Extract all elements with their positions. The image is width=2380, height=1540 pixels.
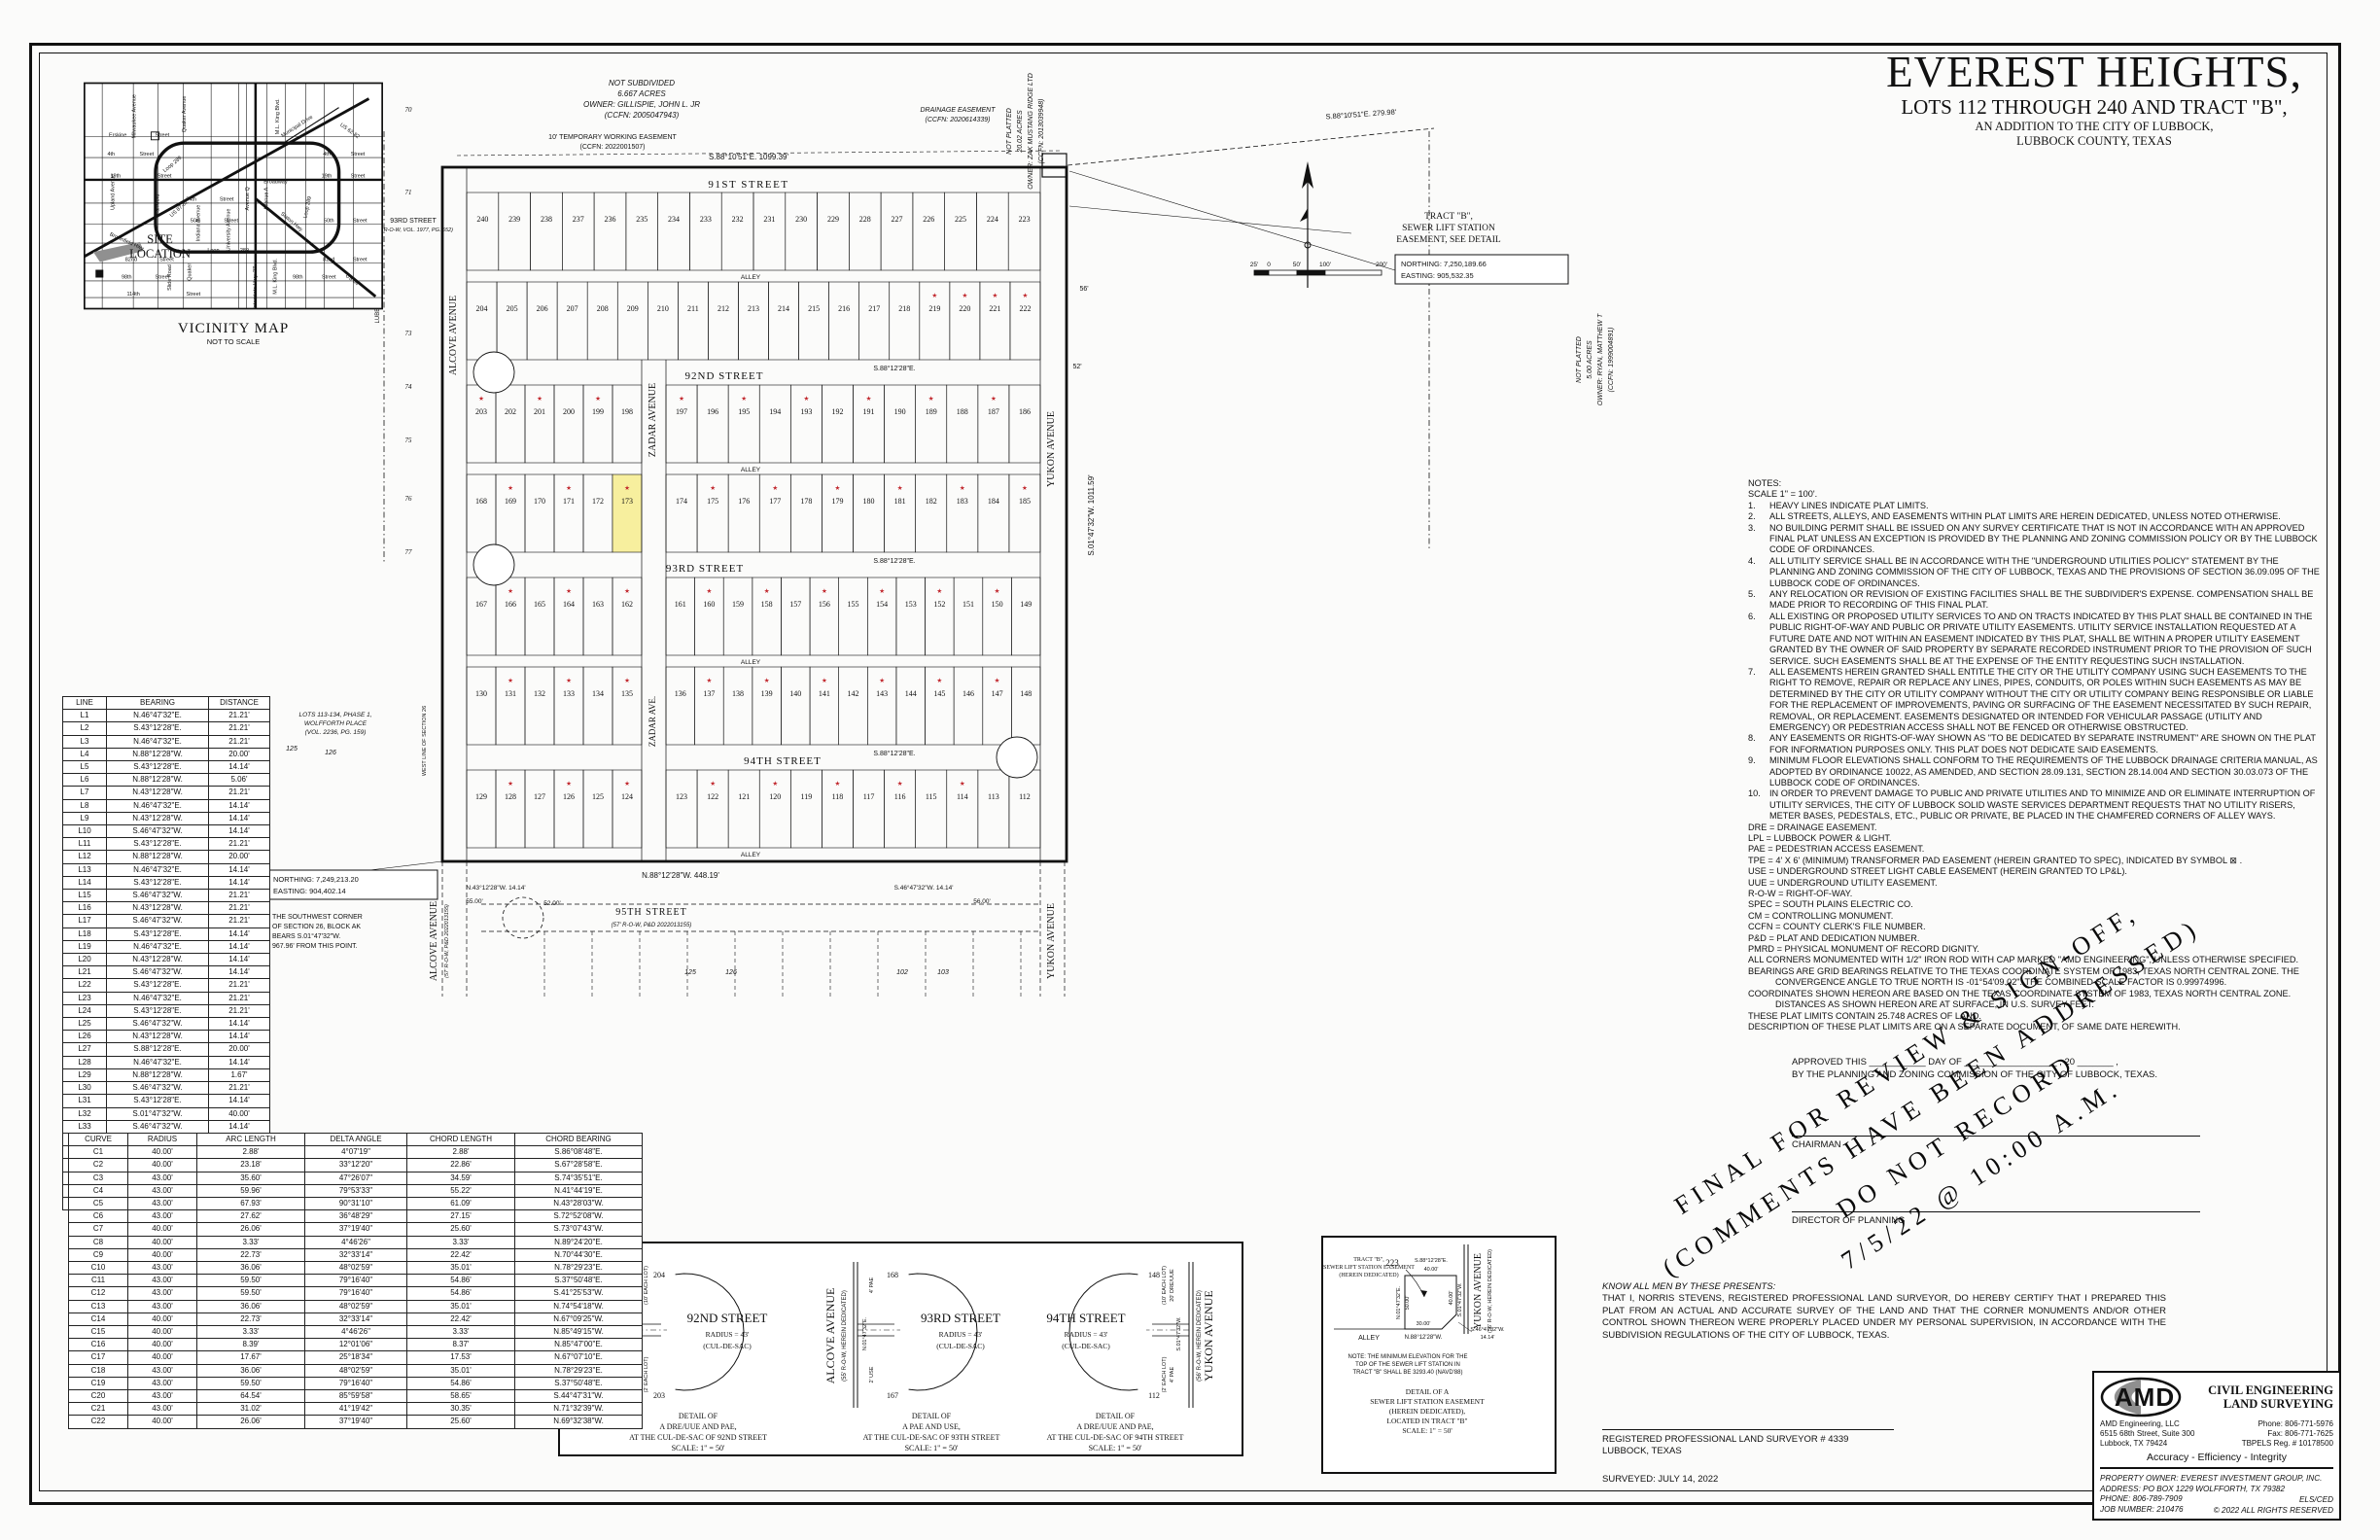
table-cell: L21 [63,966,107,979]
drawing-label: 92ND STREET [685,370,764,382]
table-cell: 21.21' [209,1082,270,1095]
surveyor-reg: REGISTERED PROFESSIONAL LAND SURVEYOR # … [1602,1434,1848,1446]
table-cell: 14.14' [209,761,270,774]
lot-number: 121 [738,792,750,801]
lot-number: 115 [926,792,937,801]
tpe-star-icon: ★ [710,780,716,787]
table-cell: L1 [63,710,107,722]
table-cell: S.43°12'28"E. [107,927,209,940]
table-cell: 31.02' [197,1403,305,1416]
note-text: ALL UTILITY SERVICE SHALL BE IN ACCORDAN… [1769,556,2322,589]
lot [1011,577,1040,655]
drawing-label: 52' [1072,364,1081,370]
lot-number: 150 [992,600,1003,609]
lot-number: 207 [567,304,578,313]
table-row: L25S.46°47'32"W.14.14' [63,1018,270,1031]
boundary-extension-dashed [1067,128,1434,165]
table-cell: 35.01' [407,1262,515,1275]
lot [1009,385,1040,463]
table-row: C1243.00'59.50'79°16'40"54.86'S.41°25'53… [69,1287,643,1300]
drawing-label: 76 [405,495,413,503]
table-cell: 25.60' [407,1416,515,1428]
tpe-star-icon: ★ [764,587,770,595]
lot-number: 180 [863,497,875,506]
table-cell: N.46°47'32"E. [107,710,209,722]
surveyed-date: SURVEYED: JULY 14, 2022 [1602,1474,1718,1486]
note-item: 8.ANY EASEMENTS OR RIGHTS-OF-WAY SHOWN A… [1748,733,2322,755]
tpe-star-icon: ★ [993,292,998,299]
drawing-label: 75 [405,437,413,444]
vicinity-street-label: Street [351,174,366,180]
table-cell: L20 [63,954,107,966]
detail-caption: DETAIL OF [1096,1412,1136,1420]
lot-number: 146 [962,689,974,698]
table-cell: S.43°12'28"E. [107,722,209,735]
drawing-label: 40.00' [1449,1291,1454,1306]
tpe-star-icon: ★ [803,395,809,402]
table-cell: 21.21' [209,979,270,992]
table-cell: N.43°12'28"W. [107,954,209,966]
table-cell: 21.21' [209,902,270,915]
drawing-label: N.43°12'28"W. 14.14' [466,884,525,892]
drawing-label: 70 [405,106,413,114]
table-cell: S.46°47'32"W. [107,966,209,979]
column-header: DISTANCE [209,697,270,710]
tpe-star-icon: ★ [897,484,903,492]
drawing-label: 14.14' [1481,1335,1495,1341]
amd-logo: AMD [2100,1377,2186,1417]
vicinity-street-label: Slide Road [167,264,173,291]
lot [854,474,885,552]
drawing-label: ALLEY [741,467,761,473]
column-header: ARC LENGTH [197,1134,305,1146]
lot [818,192,850,270]
lot [467,192,499,270]
table-cell: S.43°12'28"E. [107,761,209,774]
tpe-star-icon: ★ [507,780,513,787]
detail-lot-number: 204 [653,1271,665,1279]
lot-number: 170 [534,497,545,506]
lot-number: 190 [894,407,906,416]
table-cell: 59.50' [197,1377,305,1389]
tpe-star-icon: ★ [595,395,601,402]
lot-number: 176 [738,497,750,506]
detail-caption: SCALE: 1" = 50' [672,1444,725,1452]
lot [890,282,920,360]
lot-number: 234 [668,215,680,224]
tpe-star-icon: ★ [764,677,770,684]
drawing-label: 91ST STREET [708,179,788,191]
lot [689,192,721,270]
table-cell: N.43°12'28"W. [107,1031,209,1043]
drawing-label: (HEREIN DEDICATED) [1339,1272,1398,1278]
lot-number: 200 [563,407,575,416]
table-cell: 14.14' [209,825,270,838]
table-cell: 25.60' [407,1223,515,1236]
lot-number: 177 [769,497,781,506]
table-cell: 14.14' [209,940,270,953]
vicinity-street-label: Avenue Q [245,187,251,210]
vicinity-street-label: 289 [240,248,249,254]
lot [829,282,859,360]
leader-line [1069,171,1395,270]
lot-number: 116 [894,792,906,801]
table-cell: L24 [63,1004,107,1017]
table-cell: L16 [63,902,107,915]
lot-number: 172 [592,497,604,506]
firm-address2: Lubbock, TX 79424 [2100,1439,2194,1449]
table-cell: 37°19'40" [305,1223,407,1236]
drawing-label: 103 [937,969,949,976]
detail-dim: (10' EACH LOT) [644,1266,649,1305]
table-cell: L14 [63,876,107,889]
vicinity-street-label: SITE [147,232,173,246]
scale-bar-segment [1254,270,1269,275]
drawing-label: 126 [325,750,336,756]
table-row: C1143.00'59.50'79°16'40"54.86'S.37°50'48… [69,1275,643,1287]
tpe-star-icon: ★ [507,484,513,492]
table-cell: 47°26'07" [305,1172,407,1184]
detail-avenue-label: YUKON AVENUE [1202,1290,1215,1381]
table-cell: L5 [63,761,107,774]
abbreviation-line: DRE = DRAINAGE EASEMENT. [1748,822,2322,833]
lot-number: 206 [537,304,548,313]
table-cell: S.46°47'32"W. [107,1018,209,1031]
detail-culdesac: (CUL-DE-SAC) [936,1342,985,1350]
lot [525,667,554,745]
table-cell: L19 [63,940,107,953]
curve-table-table: CURVERADIUSARC LENGTHDELTA ANGLECHORD LE… [68,1133,643,1429]
vicinity-street-label: 19th [322,174,332,180]
note-number: 1. [1748,501,1769,511]
lot-number: 199 [592,407,604,416]
table-cell: C9 [69,1248,128,1261]
drawing-label: 95TH STREET [615,907,687,918]
firm-reg: TBPELS Reg. # 10178500 [2242,1439,2333,1449]
lot-number: 182 [926,497,937,506]
table-cell: 23.18' [197,1159,305,1172]
drawing-label: N.88°12'28"W. 448.19' [642,871,719,880]
lot-number: 202 [505,407,516,416]
tpe-star-icon: ★ [624,677,630,684]
table-cell: 21.21' [209,1004,270,1017]
table-cell: 21.21' [209,722,270,735]
note-number: 6. [1748,612,1769,667]
plat-subtitle: LOTS 112 THROUGH 240 AND TRACT "B", [1826,95,2362,120]
table-row: C1740.00'17.67'25°18'34"17.53'N.67°07'10… [69,1351,643,1364]
vicinity-street-label: Erskine [109,132,126,138]
table-cell: 25°18'34" [305,1351,407,1364]
drawing-label: 73 [405,330,413,337]
firm-block: AMD CIVIL ENGINEERING LAND SURVEYING AMD… [2092,1371,2341,1521]
table-cell: 22.42' [407,1312,515,1325]
drawing-label: TRACT "B", [1353,1257,1384,1263]
drawing-label: YUKON AVENUE [1046,903,1057,979]
lot [557,282,587,360]
table-cell: C16 [69,1339,128,1351]
lot [839,667,868,745]
lot [945,192,977,270]
drawing-label: NOT SUBDIVIDED [609,79,675,87]
note-item: 10.IN ORDER TO PREVENT DAMAGE TO PUBLIC … [1748,788,2322,822]
table-row: L4N.88°12'28"W.20.00' [63,748,270,760]
lot-number: 129 [475,792,487,801]
table-cell: 41°19'42" [305,1403,407,1416]
detail-dim: (2' EACH LOT) [1162,1356,1168,1392]
lot-number: 192 [831,407,843,416]
lot-number: 194 [769,407,781,416]
detail-dim: 20' DRE/UUE [1170,1269,1175,1302]
table-row: L3N.46°47'32"E.21.21' [63,735,270,748]
detail-radius: RADIUS = 43' [1065,1330,1108,1339]
vicinity-street-label: M.L. King Blvd. [275,98,281,134]
table-cell: C2 [69,1159,128,1172]
detail-avenue-label: ALCOVE AVENUE [823,1288,837,1384]
table-cell: C21 [69,1403,128,1416]
table-row: C2043.00'64.54'85°59'58"58.65'S.44°47'31… [69,1390,643,1403]
table-cell: 79°16'40" [305,1275,407,1287]
drawing-label: 125 [286,746,297,752]
lot-number: 229 [827,215,839,224]
coordinate-text: EASTING: 905,532.35 [1401,271,1474,280]
table-cell: L32 [63,1107,107,1120]
table-row: L10S.46°47'32"W.14.14' [63,825,270,838]
drawing-label: 52.00' [543,900,561,907]
lot [658,192,690,270]
vicinity-street-label: Upland Avenue [111,174,117,210]
note-text: ANY RELOCATION OR REVISION OF EXISTING F… [1769,589,2322,612]
table-cell: L11 [63,838,107,851]
lot-number: 216 [838,304,850,313]
drawing-label: N.88°12'28"W. [1405,1335,1443,1341]
table-cell: 26.06' [197,1223,305,1236]
table-cell: 4°46'26" [305,1326,407,1339]
table-cell: 58.65' [407,1390,515,1403]
vicinity-street-label: Broadway [263,179,288,185]
note-item: 6.ALL EXISTING OR PROPOSED UTILITY SERVI… [1748,612,2322,667]
note-text: NO BUILDING PERMIT SHALL BE ISSUED ON AN… [1769,523,2322,556]
lot [497,282,527,360]
tpe-star-icon: ★ [879,587,885,595]
lot-number: 130 [475,689,487,698]
table-row: L28N.46°47'32"E.14.14' [63,1056,270,1068]
lot [913,192,945,270]
lot [728,474,759,552]
table-cell: S.37°50'48"E. [515,1377,643,1389]
drawing-label: 56.00' [973,898,991,905]
vicinity-street-label: 4th [107,152,115,157]
table-cell: 40.00' [128,1326,197,1339]
drawing-label: NOT PLATTED [1006,108,1013,155]
site-marker [95,270,103,278]
table-row: L24S.43°12'28"E.21.21' [63,1004,270,1017]
table-cell: 85°59'58" [305,1390,407,1403]
table-cell: 32°33'14" [305,1312,407,1325]
detail-dim: (2' EACH LOT) [644,1356,649,1392]
lot [554,385,583,463]
lot [525,770,554,848]
table-cell: 40.00' [128,1312,197,1325]
lot-number: 133 [563,689,575,698]
table-cell: 67.93' [197,1198,305,1210]
lot [738,282,768,360]
drawing-label: SEWER LIFT STATION EASEMENT [1323,1265,1415,1271]
drawing-label: OF SECTION 26, BLOCK AK [272,924,361,930]
table-cell: 14.14' [209,1018,270,1031]
vicinity-street-label: Street [353,257,367,262]
table-row: L17S.46°47'32"W.21.21' [63,915,270,927]
table-cell: L26 [63,1031,107,1043]
drawing-label: OWNER: RYAN, MATTHEW T [1597,313,1604,405]
lot-number: 134 [592,689,604,698]
table-cell: 37°19'40" [305,1416,407,1428]
lot-number: 219 [928,304,940,313]
lot [786,192,818,270]
tpe-star-icon: ★ [624,587,630,595]
table-cell: S.46°47'32"W. [107,915,209,927]
detail-caption: SCALE: 1" = 50' [905,1444,959,1452]
table-cell: C7 [69,1223,128,1236]
table-cell: N.46°47'32"E. [107,940,209,953]
table-cell: 43.00' [128,1172,197,1184]
table-cell: 55.22' [407,1184,515,1197]
table-cell: 14.14' [209,876,270,889]
tpe-star-icon: ★ [566,484,572,492]
lot-number: 201 [534,407,545,416]
drawing-label: ALLEY [741,852,761,858]
tpe-star-icon: ★ [879,677,885,684]
drawing-label: OWNER: GILLISPIE, JOHN L. JR [583,100,700,109]
lot [527,282,557,360]
table-cell: 22.73' [197,1312,305,1325]
lot [885,385,916,463]
table-cell: N.43°12'28"W. [107,787,209,799]
table-cell: 59.50' [197,1275,305,1287]
tpe-star-icon: ★ [772,484,778,492]
lot [617,282,647,360]
lot-number: 213 [748,304,759,313]
table-cell: N.46°47'32"E. [107,799,209,812]
vicinity-street-label: Avenue A [263,187,269,210]
tpe-star-icon: ★ [995,677,1000,684]
lot-number: 187 [988,407,999,416]
drawing-label: ALLEY [741,274,761,281]
lot [666,667,695,745]
table-cell: N.67°09'25"W. [515,1312,643,1325]
lot-number: 193 [800,407,812,416]
table-cell: S.46°47'32"W. [107,1120,209,1133]
vicinity-street-label: 50th [324,218,334,224]
vicinity-street-label: Quaker Avenue [182,96,188,133]
table-cell: L22 [63,979,107,992]
table-cell: C5 [69,1198,128,1210]
detail-radius: RADIUS = 43' [939,1330,983,1339]
drawing-label: 126 [725,969,737,976]
table-cell: 36°48'29" [305,1210,407,1223]
tpe-star-icon: ★ [822,677,827,684]
lot-number: 165 [534,600,545,609]
lot-number: 119 [801,792,813,801]
scale-bar-tick: 0 [1267,262,1271,268]
table-cell: S.86°08'48"E. [515,1146,643,1159]
lot [666,770,697,848]
detail-lot-number: 203 [653,1391,665,1400]
table-cell: L18 [63,927,107,940]
drawing-label: 77 [405,548,413,556]
drawing-label: TRACT "B", [1424,212,1473,222]
table-cell: C6 [69,1210,128,1223]
detail-dim: 2' USE [869,1366,875,1382]
lot-number: 235 [636,215,647,224]
table-cell: 14.14' [209,1031,270,1043]
vicinity-street-label: 4th [323,152,331,157]
table-cell: N.88°12'28"W. [107,1068,209,1081]
tpe-star-icon: ★ [707,587,713,595]
table-cell: 20.00' [209,1043,270,1056]
drawing-label: 93RD STREET [666,563,744,575]
table-cell: 48°02'59" [305,1364,407,1377]
lot-number: 114 [957,792,968,801]
detail-street-name: 93RD STREET [921,1311,1000,1325]
table-row: C1843.00'36.06'48°02'59"35.01'N.78°29'23… [69,1364,643,1377]
table-cell: C8 [69,1236,128,1248]
leader-line [369,861,442,870]
table-cell: 40.00' [128,1416,197,1428]
table-cell: 14.14' [209,863,270,876]
vicinity-street-label: Milwaukee Avenue [131,94,137,139]
lot-number: 181 [894,497,906,506]
lot [1009,770,1040,848]
table-cell: 21.21' [209,787,270,799]
scale-bar-segment [1297,270,1325,275]
tpe-star-icon: ★ [960,780,965,787]
table-cell: N.85°47'00"E. [515,1339,643,1351]
table-cell: 22.86' [407,1159,515,1172]
drawing-label: (CCFN: 2020614339) [926,117,991,123]
table-cell: L9 [63,812,107,824]
table-cell: 26.06' [197,1416,305,1428]
table-row: L12N.88°12'28"W.20.00' [63,851,270,863]
lot-number: 132 [534,689,545,698]
copyright: © 2022 ALL RIGHTS RESERVED [2214,1506,2333,1517]
drawing-label: S.88°12'28"E. [873,750,915,757]
table-cell: C12 [69,1287,128,1300]
table-cell: 40.00' [128,1351,197,1364]
vicinity-street-label: 98th [122,275,132,281]
table-cell: S.46°47'32"W. [107,825,209,838]
vicinity-street-label: Quaker [188,263,193,281]
drawing-label: 5.00 ACRES [1587,340,1593,379]
lot [781,577,810,655]
table-cell: C10 [69,1262,128,1275]
drawing-label: (57' R-O-W, P&D 2022013155) [444,904,450,978]
drawing-label: 102 [896,969,908,976]
plat-county-line: LUBBOCK COUNTY, TEXAS [1826,134,2362,149]
lot-number: 123 [676,792,687,801]
lot [721,192,753,270]
scale-bar-tick: 100' [1319,262,1331,268]
vicinity-street-label: 98th [293,275,303,281]
lot [849,192,881,270]
lot-number: 153 [905,600,917,609]
coordinate-text: NORTHING: 7,250,189.66 [1401,260,1487,268]
lot-number: 152 [933,600,945,609]
surveyor-signature-line [1602,1429,1894,1430]
drawing-label: S.88°10'51"E. 1099.39' [709,153,789,161]
detail-dim: (10' EACH LOT) [1162,1266,1168,1305]
lot-number: 233 [700,215,712,224]
drawing-label: 93RD STREET [390,218,437,225]
